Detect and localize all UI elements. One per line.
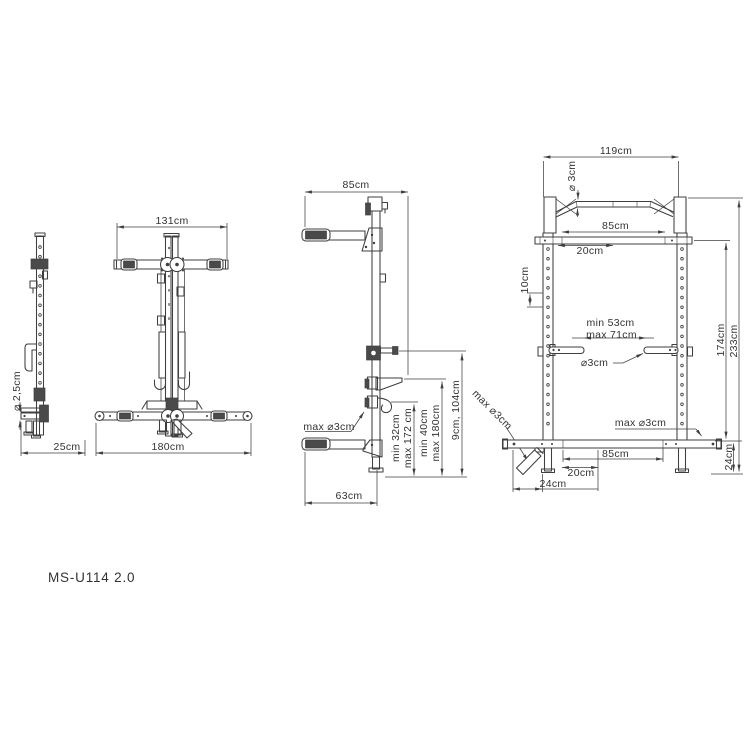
dim-front-spotter-gap-min: min 53cm — [587, 316, 635, 328]
dim-front-spotter-dia: ⌀3cm — [581, 356, 608, 368]
dim-side-safety-range: min 40cm max 180cm — [417, 405, 441, 462]
safety-range-min: min 40cm — [417, 405, 429, 462]
dim-front-total-height: 233cm — [728, 324, 740, 357]
side-profile-view — [302, 192, 528, 506]
model-label: MS-U114 2.0 — [48, 570, 135, 585]
front-folded-view — [95, 223, 252, 456]
jhook-range-min: min 32cm — [389, 408, 401, 468]
dim-side-base-depth: 63cm — [336, 490, 363, 502]
safety-range-max: max 180cm — [430, 405, 442, 462]
dim-front-base-side-offset: 24cm — [540, 477, 567, 489]
dim-front-pullup-dia: ⌀ 3cm — [565, 161, 577, 192]
dim-side-jhook-bar-dia: max ⌀3cm — [303, 420, 354, 432]
dim-front-peg-dia: max ⌀3cm — [615, 416, 666, 428]
dim-front-handle-offset: 20cm — [577, 245, 604, 257]
dim-side-top-depth: 85cm — [343, 179, 370, 191]
dim-side-pin-range: 9cm, 104cm — [449, 380, 461, 440]
dim-front-rack-height: 174cm — [714, 323, 726, 356]
technical-drawing-page: ⌀ 2,5cm 25cm 131cm 180cm 85cm max ⌀3cm m… — [0, 0, 750, 750]
side-folded-view — [20, 233, 85, 456]
dim-front-base-offset: 20cm — [568, 466, 595, 478]
dim-side-folded-depth: 25cm — [54, 440, 81, 452]
jhook-range-max: max 172 cm — [402, 408, 414, 468]
dim-front-base-height: 24cm — [722, 444, 734, 471]
dim-front-folded-arm-width: 131cm — [155, 214, 188, 226]
dim-front-hole-spacing: 10cm — [518, 267, 530, 294]
dim-side-jhook-range: min 32cm max 172 cm — [389, 408, 413, 468]
dim-front-base-inner-width: 85cm — [602, 447, 629, 459]
drawing-geometry — [0, 0, 750, 750]
dim-side-folded-foot-dia: ⌀ 2,5cm — [10, 371, 22, 411]
dim-front-folded-base-width: 180cm — [151, 440, 184, 452]
dim-front-spotter-gap-max: max 71cm — [586, 328, 637, 340]
dim-front-total-width: 119cm — [600, 145, 632, 157]
dim-front-handle-width: 85cm — [602, 220, 629, 232]
